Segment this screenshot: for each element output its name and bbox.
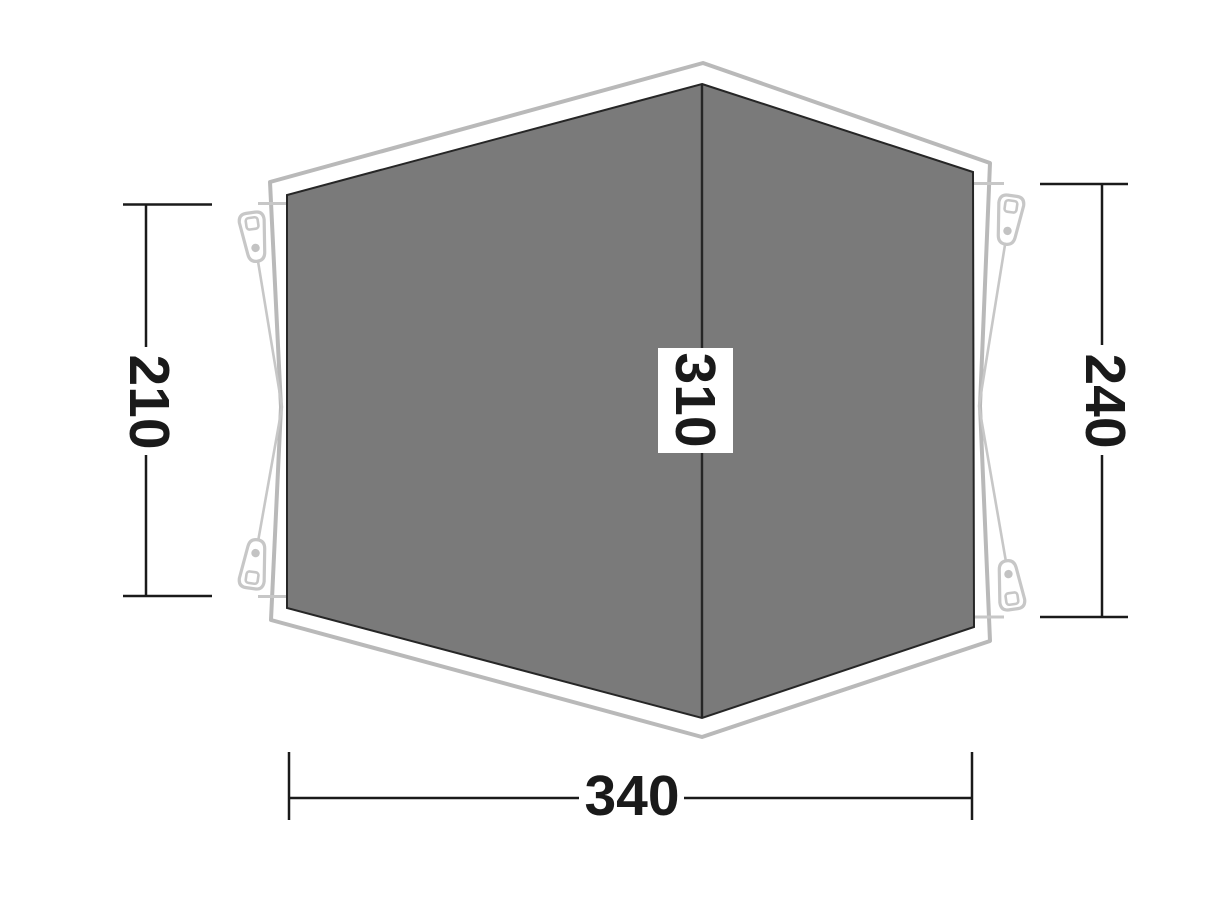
groundsheet xyxy=(287,84,974,718)
peg-icon-top-right xyxy=(993,194,1025,246)
peg-icon-bottom-right xyxy=(994,559,1026,611)
left-dimension-label: 210 xyxy=(117,354,181,449)
ridge-dimension-label: 310 xyxy=(663,352,727,447)
peg-icon-bottom-left xyxy=(238,538,270,590)
bottom-dimension-label: 340 xyxy=(584,764,679,828)
tent-footprint-diagram: 310 xyxy=(0,0,1230,898)
diagram-canvas: 310 xyxy=(0,0,1230,898)
right-dimension-label: 240 xyxy=(1073,353,1137,448)
peg-icon-top-left xyxy=(238,211,270,263)
